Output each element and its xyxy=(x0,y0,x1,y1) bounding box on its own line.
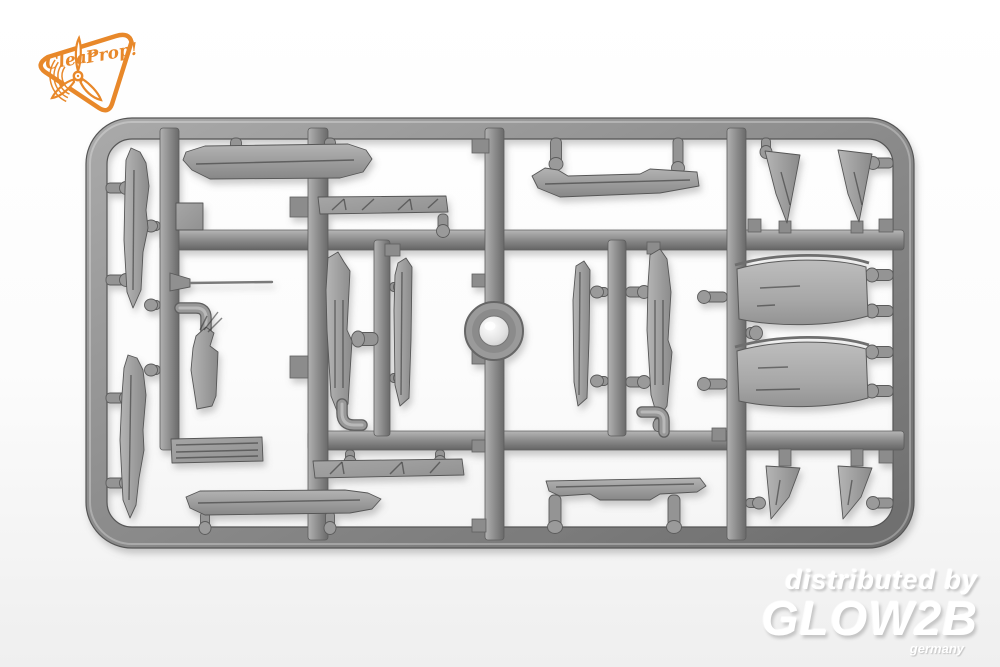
sprue-gate xyxy=(549,138,563,171)
sprue-gate xyxy=(591,286,609,298)
part-fin-top-right-1 xyxy=(765,151,800,223)
sprue-gate xyxy=(626,376,651,389)
ejector-tab xyxy=(779,449,791,466)
sprue-gate xyxy=(866,384,894,398)
part-hull-lower-right xyxy=(546,478,706,500)
part-fin-bottom-right-1 xyxy=(766,466,800,519)
part-hull-upper-right xyxy=(532,168,699,197)
ejector-tab xyxy=(779,221,791,233)
ejector-tab xyxy=(472,274,485,287)
part-fuselage-spine-right xyxy=(647,249,672,419)
part-elbow-pipe-right xyxy=(642,412,664,432)
part-blade-lower-left xyxy=(120,355,146,518)
injection-ring xyxy=(465,302,523,360)
sprue-gate xyxy=(548,495,563,534)
part-fuselage-spine-left xyxy=(326,252,352,416)
part-cowl-panel-lower xyxy=(735,337,869,406)
part-fin-top-right-2 xyxy=(838,150,872,222)
watermark-distributed-by: distributed by xyxy=(761,567,978,594)
sprue-gate xyxy=(437,214,450,238)
part-flat-panel-lower-left xyxy=(171,437,263,463)
part-square-panel-small xyxy=(176,203,203,230)
part-fin-bottom-right-2 xyxy=(838,466,872,519)
distributor-watermark: distributed by GLOW2B germany xyxy=(761,567,978,659)
runner xyxy=(727,128,746,540)
ejector-tab xyxy=(879,219,893,232)
part-elbow-pipe-center xyxy=(342,404,362,425)
product-photo: Clear Prop! distributed by GLOW2B german… xyxy=(0,0,1000,667)
sprue-gate xyxy=(866,268,894,282)
sprue-gate xyxy=(145,364,161,376)
watermark-glow2b-logo: GLOW2B xyxy=(761,596,978,644)
ejector-tab xyxy=(290,356,308,378)
ejector-tab xyxy=(748,219,761,232)
runner xyxy=(608,240,626,436)
sprue-gate xyxy=(746,326,763,340)
part-walkway-strip-bottom xyxy=(313,459,464,478)
part-blade-center-right xyxy=(573,261,590,406)
ejector-tab xyxy=(712,428,726,441)
ejector-tab xyxy=(879,450,893,463)
part-hull-upper-left xyxy=(183,144,372,179)
part-pitot-needle xyxy=(170,273,272,291)
part-cockpit-detail-cluster xyxy=(191,312,222,409)
sprue-gate xyxy=(698,378,728,391)
part-cowl-panel-upper xyxy=(735,255,869,324)
part-hull-lower-left xyxy=(186,490,381,515)
ejector-tab xyxy=(385,244,400,256)
ejector-tab xyxy=(290,197,308,217)
sprue-gate xyxy=(591,375,609,387)
part-blade-upper-left xyxy=(124,148,149,308)
ejector-tab xyxy=(472,139,489,153)
part-blade-center-left xyxy=(394,258,412,406)
sprue xyxy=(86,118,914,548)
sprue-gate xyxy=(145,299,161,311)
ejector-tab xyxy=(472,440,485,452)
ejector-tab xyxy=(472,519,486,532)
clearprop-logo: Clear Prop! xyxy=(14,12,154,124)
ejector-tab xyxy=(851,221,863,233)
sprue-gate xyxy=(352,331,379,347)
sprue-gate xyxy=(324,512,336,535)
sprue-gate xyxy=(866,304,894,318)
sprue-gate xyxy=(626,286,651,299)
part-walkway-strip-top xyxy=(318,196,448,214)
sprue-gate xyxy=(746,497,766,509)
ejector-tab xyxy=(851,449,863,466)
sprue-gate xyxy=(672,138,685,175)
sprue-gate xyxy=(866,345,894,359)
sprue-gate xyxy=(667,495,682,534)
sprue-gate xyxy=(698,291,728,304)
sprue-gate xyxy=(867,497,894,510)
runner xyxy=(308,431,904,450)
runner xyxy=(160,230,904,250)
